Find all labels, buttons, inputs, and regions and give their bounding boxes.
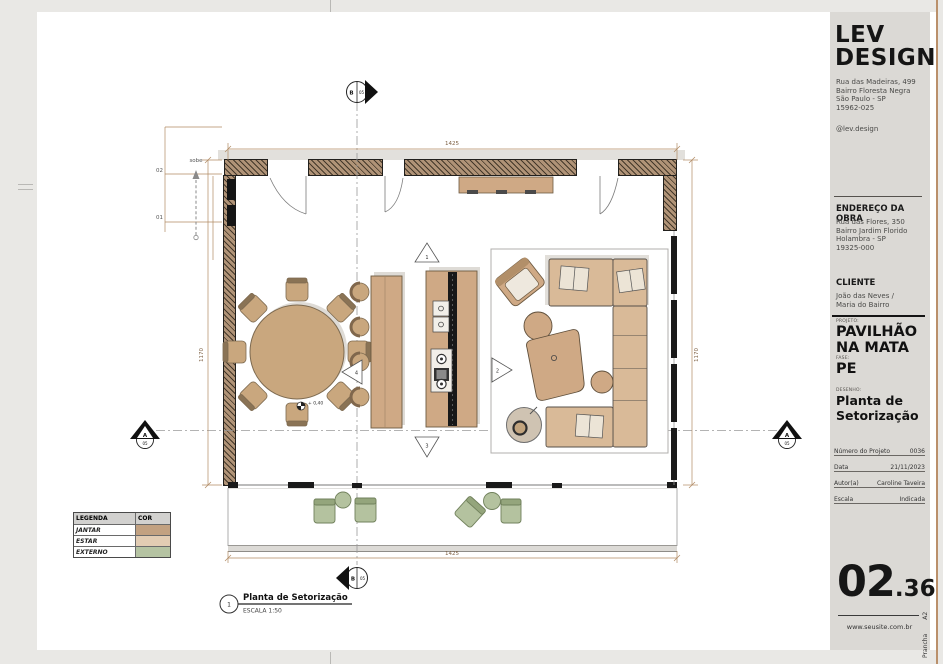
fold-mark-bottom [330,652,331,664]
website: www.seusite.com.br [834,623,925,631]
fold-mark-left-1 [18,184,33,185]
project-name-line: PAVILHÃO [836,324,917,340]
site-address-line: Rua das Flores, 350 [836,218,907,227]
field-date: Data 21/11/2023 [834,456,925,472]
wall-top-segment-4 [618,159,677,176]
titleblock: LEV DESIGN Rua das Madeiras, 499 Bairro … [830,12,930,650]
divider-line [834,196,922,197]
legend-header-label: LEGENDA [74,513,136,524]
logo-line-2: DESIGN [835,47,936,70]
paper-sheet [37,12,936,650]
legend-swatch [136,525,170,535]
drawing-sheet-page: { "titleblock": { "logo_line1": "LEV", "… [0,0,943,664]
field-value: Indicada [899,496,925,503]
office-address-line: Rua das Madeiras, 499 [836,78,916,87]
office-address-line: Bairro Floresta Negra [836,87,916,96]
fold-mark-top [330,0,331,12]
legend-label: EXTERNO [74,547,136,557]
field-value: Caroline Taveira [877,480,925,487]
drawing-name-line: Setorização [836,409,919,424]
legend-row-estar: ESTAR [74,535,170,546]
legend-swatch [136,536,170,546]
office-address: Rua das Madeiras, 499 Bairro Floresta Ne… [836,78,916,112]
field-author: Autor(a) Caroline Taveira [834,472,925,488]
logo-line-1: LEV [835,24,936,47]
legend-header: LEGENDA COR [74,513,170,524]
legend-label: JANTAR [74,525,136,535]
site-address: Rua das Flores, 350 Bairro Jardim Florid… [836,218,907,252]
terrace-edge-band [228,545,677,552]
social-handle: @lev.design [836,125,878,133]
field-label: Escala [834,496,853,503]
sheet-number-minor: .36 [895,576,936,602]
black-divider [832,315,925,317]
field-value: 21/11/2023 [890,464,925,471]
legend-label: ESTAR [74,536,136,546]
client-heading: CLIENTE [836,278,875,288]
wall-left [223,175,236,486]
page-edge-line [936,0,938,664]
legend-table: LEGENDA COR JANTAR ESTAR EXTERNO [73,512,171,558]
site-address-line: 19325-000 [836,244,907,253]
wall-top-segment-1 [224,159,268,176]
wall-right-corner [663,175,677,231]
field-label: Número do Projeto [834,448,890,455]
divider-line [838,615,919,616]
project-fields: Número do Projeto 0036 Data 21/11/2023 A… [834,440,925,504]
field-project-number: Número do Projeto 0036 [834,440,925,456]
legend-row-jantar: JANTAR [74,524,170,535]
prancha-text: Prancha [922,634,929,658]
site-address-line: Holambra - SP [836,235,907,244]
project-name: PAVILHÃO NA MATA [836,324,917,356]
field-label: Autor(a) [834,480,859,487]
drawing-name-line: Planta de [836,394,919,409]
client-line: João das Neves / [836,292,894,301]
prancha-size: A2 [922,612,929,620]
field-scale: Escala Indicada [834,488,925,504]
fold-mark-left-2 [18,189,33,190]
client-line: Maria do Bairro [836,301,894,310]
legend-header-color: COR [136,513,170,524]
drawing-name: Planta de Setorização [836,394,919,423]
client-names: João das Neves / Maria do Bairro [836,292,894,309]
office-address-line: São Paulo - SP [836,95,916,104]
wall-top-segment-3 [404,159,577,176]
legend-swatch [136,547,170,557]
project-name-line: NA MATA [836,340,917,356]
field-value: 0036 [910,448,925,455]
sheet-number: 02 .36 [837,557,936,607]
phase-value: PE [836,361,857,377]
company-logo: LEV DESIGN [835,24,936,70]
prancha-label: PranchaA2 [922,568,929,658]
wall-top-segment-2 [308,159,383,176]
sheet-number-major: 02 [837,557,895,607]
legend-row-externo: EXTERNO [74,546,170,557]
site-address-line: Bairro Jardim Florido [836,227,907,236]
office-address-line: 15962-025 [836,104,916,113]
field-label: Data [834,464,848,471]
